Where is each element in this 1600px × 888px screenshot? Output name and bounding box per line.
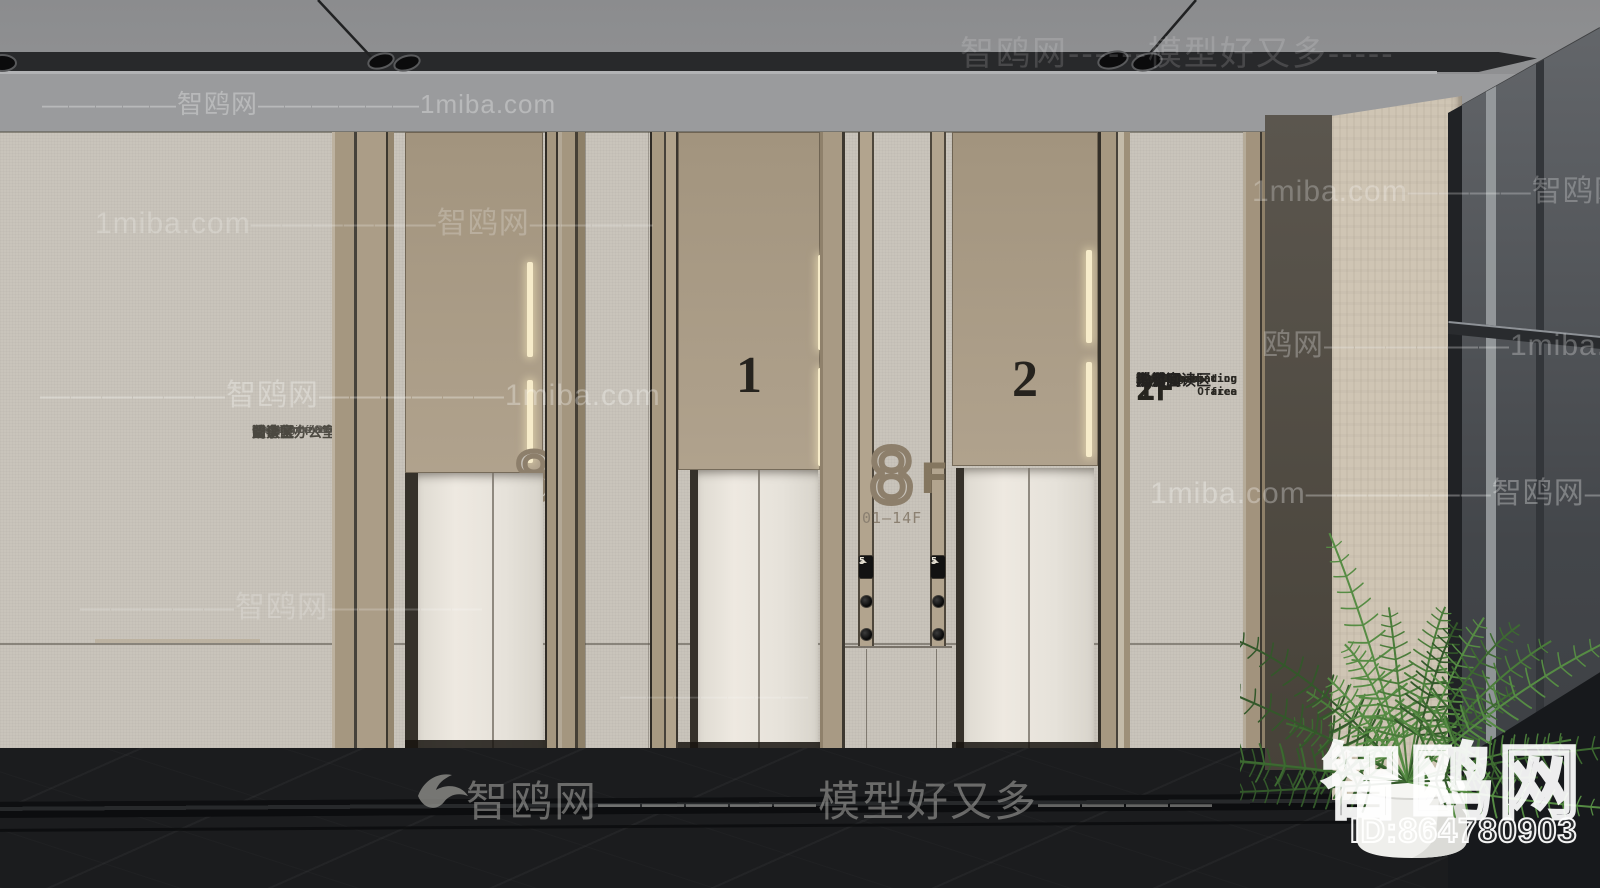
plant-pot: [1357, 773, 1467, 858]
wall-pilaster: [820, 132, 845, 748]
wall-pilaster: [332, 132, 394, 748]
window-rail: [1447, 321, 1600, 350]
elevator-number: 1: [678, 350, 820, 402]
indicator-floor-value: 5: [931, 556, 937, 568]
ceiling-edge-line: [318, 0, 374, 60]
panel-seam: [648, 132, 649, 748]
call-button: [860, 628, 873, 641]
door-jamb: [690, 470, 698, 750]
potted-palm-plant: [1240, 490, 1600, 888]
wall-pilaster: [650, 132, 678, 748]
directory-entry-zh: 洗手间: [1136, 372, 1181, 390]
elevator-number: 2: [952, 354, 1098, 406]
door-sill: [405, 740, 545, 748]
elevator-1-transom: 1: [678, 132, 820, 470]
elevator-lobby-render: Chairman's Office 董事长办公室 Negotiation are…: [0, 0, 1600, 888]
elevator-1-door: [698, 470, 818, 750]
panel-seam: [936, 649, 937, 748]
led-strip: [1086, 362, 1092, 457]
floor-sign-suffix: F: [920, 458, 949, 500]
led-strip: [1086, 250, 1092, 343]
door-jamb: [956, 468, 964, 749]
elevator-left-transom: [405, 132, 543, 473]
elevator-left-door: [418, 473, 543, 749]
hall-indicator: 5: [859, 556, 873, 578]
ceiling-spotlight-icon: [0, 49, 1163, 74]
led-strip: [527, 262, 533, 357]
hall-indicator: 5: [931, 556, 945, 578]
ceiling-edge-line: [1146, 0, 1196, 58]
door-center-gap: [1028, 468, 1030, 749]
wall-pilaster: [1098, 132, 1130, 748]
indicator-floor-value: 5: [859, 556, 865, 568]
door-center-gap: [492, 473, 494, 749]
door-center-gap: [758, 470, 760, 750]
directory-entry-zh: 阅读区: [252, 424, 294, 441]
door-jamb: [405, 473, 418, 749]
call-button: [860, 595, 873, 608]
floor-sign-number: 8: [868, 440, 915, 514]
panel-seam: [866, 649, 867, 748]
elevator-2-transom: 2: [952, 132, 1098, 466]
call-button: [932, 595, 945, 608]
panel-seam: [845, 646, 952, 648]
elevator-2-door: [964, 468, 1094, 749]
call-button: [932, 628, 945, 641]
wall-pilaster: [545, 132, 585, 748]
floor-range-text: 01—14F: [862, 509, 922, 527]
panel-seam: [585, 132, 586, 748]
seagull-logo-icon: [410, 762, 474, 822]
